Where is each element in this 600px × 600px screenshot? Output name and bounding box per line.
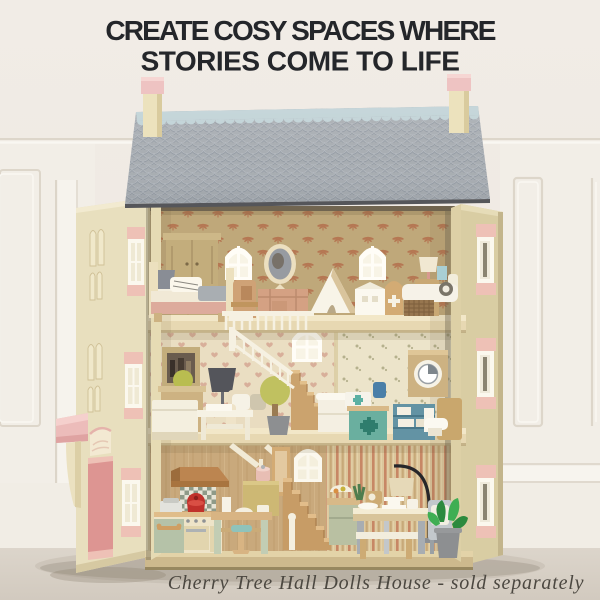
- svg-text:Cherry Tree Hall Dolls House -: Cherry Tree Hall Dolls House - sold sepa…: [168, 572, 585, 594]
- svg-text:CREATE COSY SPACES WHERE: CREATE COSY SPACES WHERE: [105, 15, 495, 46]
- svg-text:STORIES COME TO LIFE: STORIES COME TO LIFE: [141, 46, 460, 77]
